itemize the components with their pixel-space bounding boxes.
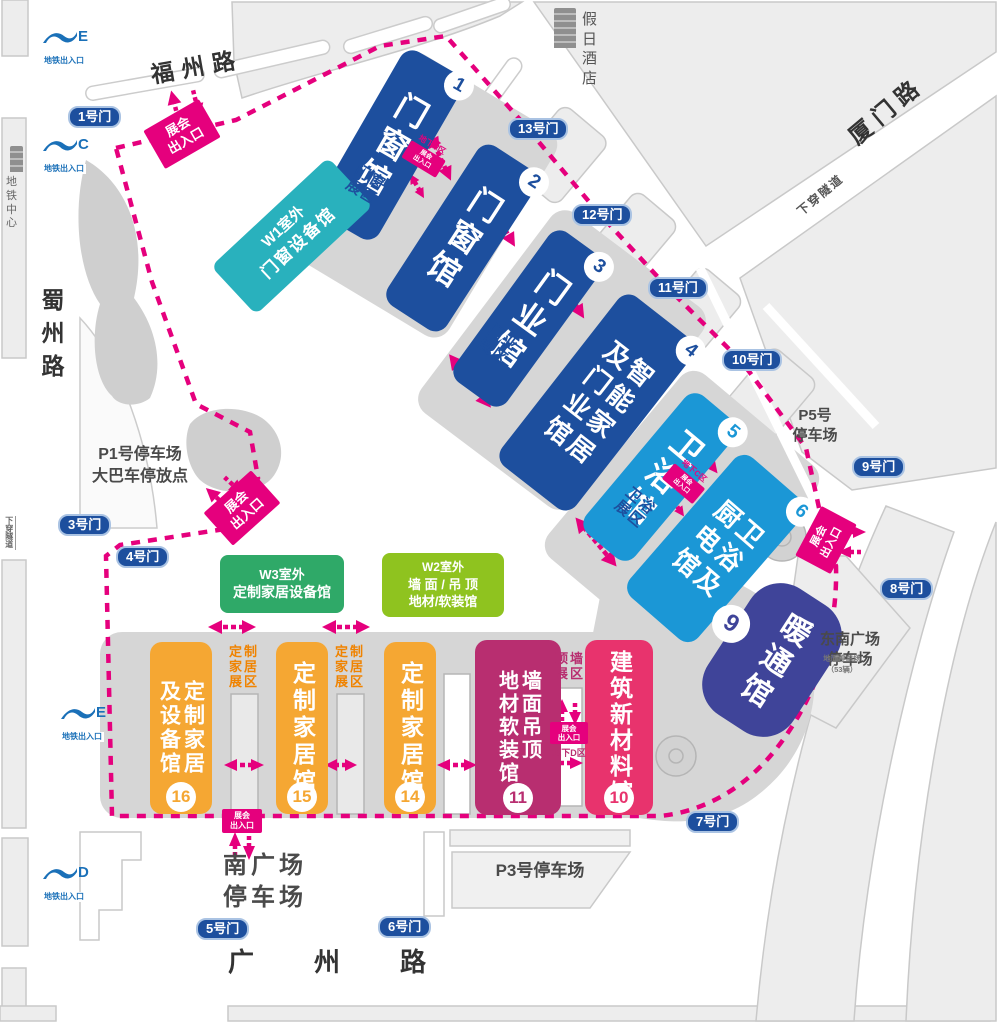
metro-exit-e-mid[interactable]: E 地铁出入口 — [60, 704, 138, 744]
gate-3[interactable]: 3号门 — [58, 514, 111, 536]
road-guangzhou: 广州路 — [228, 942, 486, 979]
zone-custom-home-1: 定制家居展区 — [222, 645, 266, 690]
gate-11[interactable]: 11号门 — [648, 277, 708, 299]
hall-14-number: 14 — [395, 782, 425, 812]
metro-wave-icon — [60, 704, 96, 721]
metro-center-building-icon — [10, 146, 23, 172]
gate-5[interactable]: 5号门 — [196, 918, 249, 940]
metro-exit-c[interactable]: C 地铁出入口 — [42, 136, 120, 176]
hall-15-number: 15 — [287, 782, 317, 812]
underground-entrance-d-label: 地下D区 — [544, 746, 594, 759]
underground-entrance-d-box[interactable]: 展会出入口 — [550, 722, 588, 744]
gate-12[interactable]: 12号门 — [572, 204, 632, 226]
gate-10[interactable]: 10号门 — [722, 349, 782, 371]
zone-custom-home-2: 定制家居展区 — [328, 645, 372, 690]
hall-15-custom-home[interactable]: 定制家居馆 15 — [276, 642, 328, 814]
expo-venue-map: 福州路 厦门路 下穿隧道 蜀州路 广州路 下穿隧道 假日 酒店 地铁 中心 E … — [0, 0, 1000, 1023]
hall-16-number: 16 — [166, 782, 196, 812]
gate-13[interactable]: 13号门 — [508, 118, 568, 140]
hall-10-new-building-materials[interactable]: 建筑新材料馆 10 — [585, 640, 653, 815]
metro-exit-e-top[interactable]: E 地铁出入口 — [42, 28, 120, 68]
parking-ground-note: 地面停车场（53辆） — [806, 654, 878, 675]
metro-exit-d[interactable]: D 地铁出入口 — [42, 864, 120, 904]
zone-ceiling-wall: 顶墙展区 — [550, 652, 590, 682]
expo-entrance-south[interactable]: 展会出入口 — [222, 809, 262, 833]
outdoor-hall-w3[interactable]: W3室外 定制家居设备馆 — [220, 555, 344, 613]
hotel-building-icon — [554, 8, 576, 48]
outdoor-hall-w2[interactable]: W2室外 墙 面 / 吊 顶 地材/软装馆 — [382, 553, 504, 617]
parking-south-square: 南广场停车场 — [195, 850, 335, 915]
hall-11-wall-ceiling-flooring-soft-deco[interactable]: 墙面吊顶 地材软装馆 11 — [475, 640, 561, 815]
gate-8[interactable]: 8号门 — [880, 578, 933, 600]
parking-p3: P3号停车场 — [470, 860, 610, 883]
road-tunnel-west: 下穿隧道 — [4, 516, 16, 550]
hall-10-number: 10 — [604, 783, 634, 813]
metro-wave-icon — [42, 28, 78, 45]
metro-wave-icon — [42, 136, 78, 153]
gate-6[interactable]: 6号门 — [378, 916, 431, 938]
gate-4[interactable]: 4号门 — [116, 546, 169, 568]
hall-14-custom-home[interactable]: 定制家居馆 14 — [384, 642, 436, 814]
metro-wave-icon — [42, 864, 78, 881]
gate-9[interactable]: 9号门 — [852, 456, 905, 478]
hall-16-custom-home-equipment[interactable]: 定制家居 及设备馆 16 — [150, 642, 212, 814]
gate-1[interactable]: 1号门 — [68, 106, 121, 128]
parking-p1: P1号停车场大巴车停放点 — [60, 444, 220, 487]
gate-7[interactable]: 7号门 — [686, 811, 739, 833]
road-shuzhou: 蜀州路 — [34, 288, 68, 387]
hall-11-number: 11 — [503, 783, 533, 813]
parking-p5: P5号停车场 — [780, 406, 850, 447]
